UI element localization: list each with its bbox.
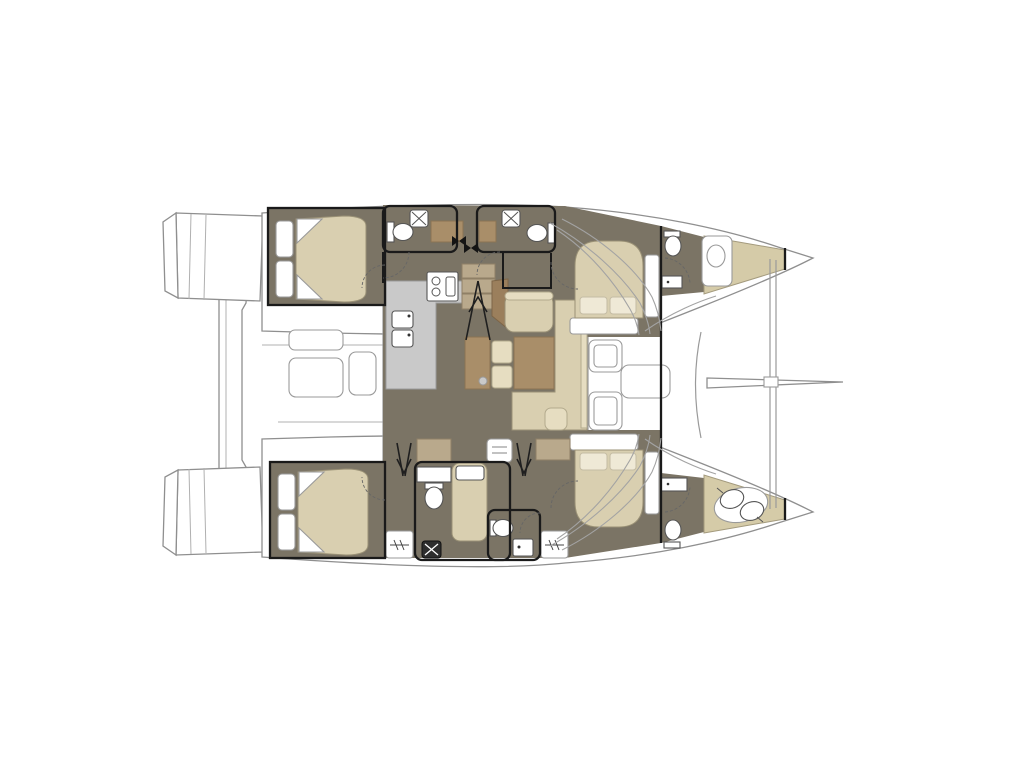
galley-faucet-2 (408, 334, 411, 337)
bath-sink-icon-stbd (513, 539, 533, 556)
transom-lip-port (163, 213, 178, 298)
bed-pillow-port-2 (276, 261, 293, 297)
fwd-bed-pillow-port-2 (610, 297, 636, 314)
catamaran-floorplan (0, 0, 1024, 768)
bow-shelf-stbd-dot (667, 483, 670, 486)
bath-seat-port-1 (431, 221, 463, 242)
bath-shelf-stbd (417, 467, 451, 482)
stove-icon (427, 272, 458, 301)
drawer-unit (487, 439, 512, 462)
toilet-icon-stbd-bow-bowl (665, 520, 681, 540)
saloon-step-3 (462, 294, 495, 309)
bath-seat-port-2 (479, 221, 496, 242)
bow-sink-module-port (702, 236, 732, 286)
bed-pillow-stbd-1 (278, 474, 295, 510)
cushion-2 (492, 366, 512, 388)
saloon-table-2 (514, 337, 554, 389)
lounge-seat-back (505, 292, 553, 300)
stair-landing-1 (417, 439, 451, 462)
bed-pillow-stbd-2 (278, 514, 295, 550)
fwd-bed-platform-stbd (570, 434, 638, 450)
fwd-dresser-stbd (645, 452, 659, 514)
forward-beam (696, 332, 702, 438)
galley-sink-icon-2 (392, 330, 413, 347)
stern-walkway (219, 291, 246, 479)
bed-pillow-port-1 (276, 221, 293, 257)
bow-shelf-port (662, 276, 682, 288)
fwd-dresser-port (645, 255, 659, 317)
galley-faucet-1 (408, 315, 411, 318)
stair-landing-2 (536, 439, 570, 460)
pouf (545, 408, 567, 430)
shower-tray-stbd (456, 466, 484, 480)
cockpit-bench-2 (289, 358, 343, 397)
toilet-icon-port-aft-bowl (393, 224, 413, 241)
fwd-bed-platform-port (570, 318, 638, 334)
fwd-bed-pillow-port-1 (580, 297, 607, 314)
table-pedestal (479, 377, 487, 385)
bowsprit-fitting (764, 377, 778, 387)
cockpit-bench-3 (349, 352, 376, 395)
toilet-icon-stbd-1-bowl (425, 487, 443, 509)
cushion-1 (492, 341, 512, 363)
bow-shelf-port-dot (667, 281, 670, 284)
floorplan-svg (0, 0, 1024, 768)
toilet-icon-port-mid-bowl (527, 225, 547, 242)
cockpit-bench-1 (289, 330, 343, 350)
deck-hatch (621, 365, 670, 398)
galley-sink-icon-1 (392, 311, 413, 328)
bath-sink-faucet-stbd (518, 546, 521, 549)
floorplan-page (0, 0, 1024, 768)
toilet-icon-port-bow-bowl (665, 236, 681, 256)
fwd-bed-pillow-stbd-1 (580, 453, 607, 470)
bow-shelf-stbd (661, 478, 687, 491)
transom-lip-starboard (163, 470, 178, 555)
toilet-icon-stbd-bow-tank (664, 542, 680, 548)
